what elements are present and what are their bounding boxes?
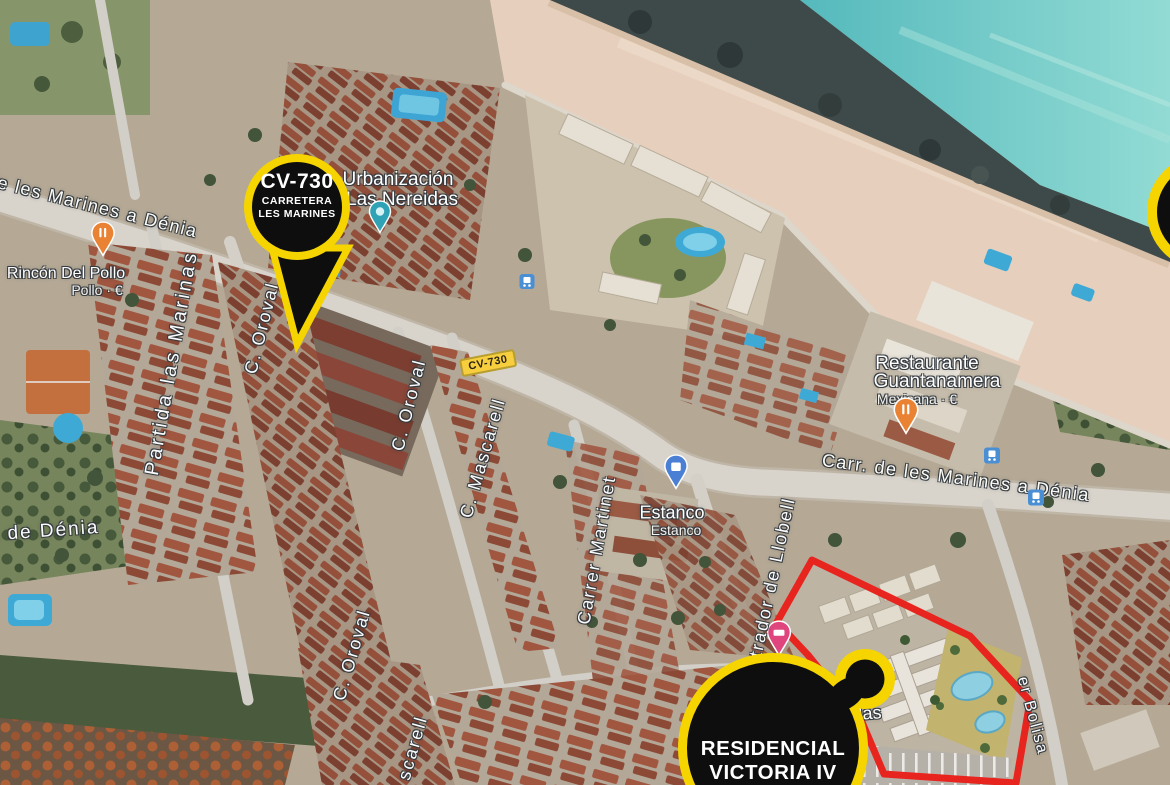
cv730-callout-line1: CARRETERA [262,195,332,207]
poi-category-rincon: Pollo · € [71,282,122,298]
restaurant-pin-icon [90,221,116,257]
partial-callout-circle-inner [1157,164,1170,260]
bus-stop-icon[interactable] [1028,490,1044,511]
site-callout-line1: RESIDENCIAL [701,737,845,761]
restaurant-pin-icon [892,397,920,435]
aerial-map: de les Marines a Dénia Carr. de les Mari… [0,0,1170,785]
site-callout-residencial-victoria: RESIDENCIAL VICTORIA IV [663,634,923,785]
cv730-callout-title: CV-730 [260,170,333,194]
poi-label-rincon[interactable]: Rincón Del Pollo [7,265,125,283]
store-pin-icon [663,454,689,490]
poi-label-guantanamera-2[interactable]: Guantanamera [874,371,1001,393]
bus-stop-icon[interactable] [984,448,1000,469]
cv730-callout-line2: LES MARINES [258,208,335,220]
bus-stop-icon[interactable] [520,274,535,294]
store-pin-estanco[interactable] [663,454,689,495]
poi-category-estanco: Estanco [651,522,702,538]
poi-label-estanco[interactable]: Estanco [639,503,704,524]
cv730-road-callout: CV-730 CARRETERA LES MARINES [225,145,375,355]
site-callout-line2: VICTORIA IV [709,761,836,785]
restaurant-pin-rincon[interactable] [90,221,116,262]
restaurant-pin-guantanamera[interactable] [892,397,920,440]
